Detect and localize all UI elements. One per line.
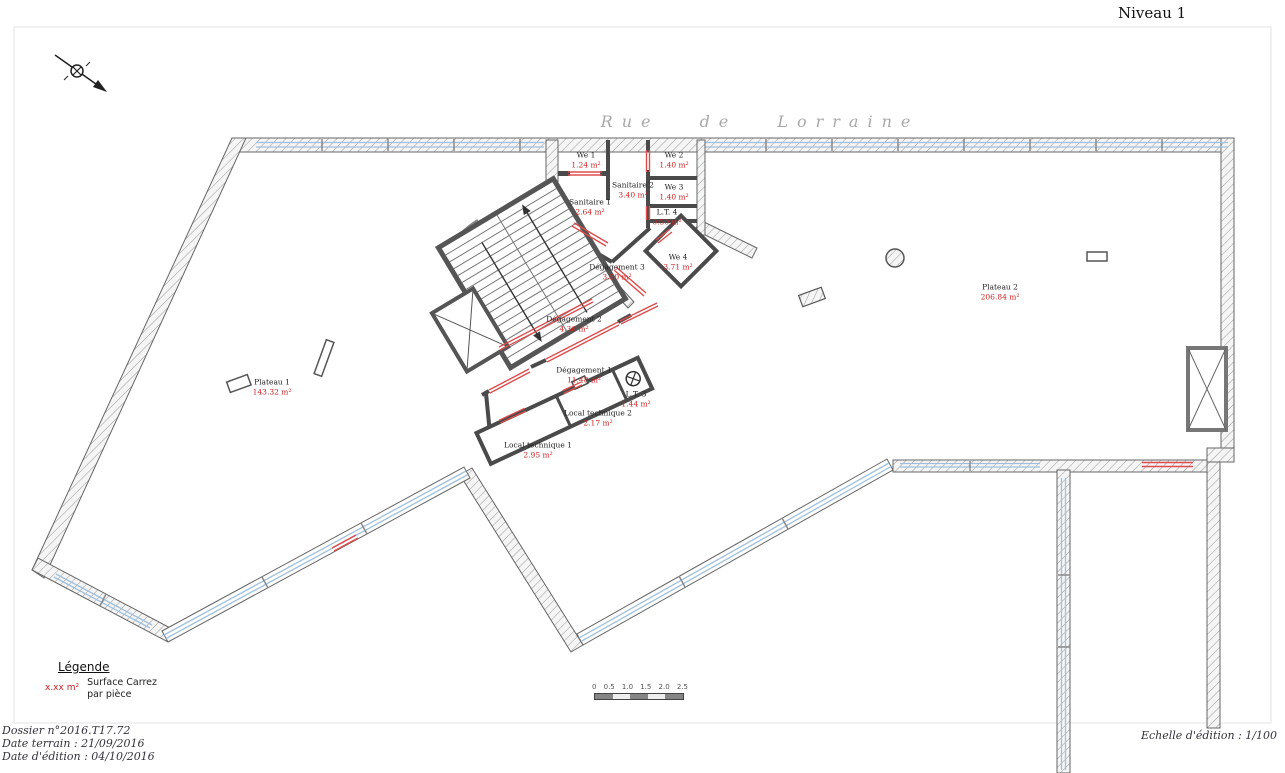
- exterior-walls: [32, 138, 1234, 773]
- room-label-sanitaire2: Sanitaire 23.40 m²: [612, 180, 654, 200]
- scale-bar-ticks: 0 0.5 1.0 1.5 2.0 2.5: [592, 683, 688, 691]
- room-label-degagement2: Dégagement 24.36 m²: [546, 314, 602, 334]
- legend-title: Légende: [58, 660, 157, 674]
- round-column: [886, 249, 904, 267]
- street-label: Rue de Lorraine: [601, 112, 920, 131]
- room-label-sanitaire1: Sanitaire 12.64 m²: [569, 197, 611, 217]
- room-label-we3: We 31.40 m²: [659, 182, 688, 202]
- legend: Légende x.xx m² Surface Carrez par pièce: [45, 660, 157, 701]
- page-title: Niveau 1: [1118, 4, 1186, 22]
- room-label-degagement3: Dégagement 33.50 m²: [589, 262, 645, 282]
- scale-bar-segments: [594, 693, 684, 700]
- room-label-plateau1: Plateau 1143.32 m²: [253, 377, 292, 397]
- footer-info: Dossier n°2016.T17.72 Date terrain : 21/…: [2, 725, 155, 764]
- legend-description: Surface Carrez par pièce: [87, 677, 157, 701]
- edition-scale: Echelle d'édition : 1/100: [1141, 729, 1277, 742]
- north-arrow-icon: [55, 55, 107, 92]
- window-walls: [162, 459, 893, 645]
- legend-sample-area: x.xx m²: [45, 683, 79, 693]
- floor-plan-page: Niveau 1 Rue de Lorraine We 11.24 m² We …: [0, 0, 1285, 773]
- scale-bar: 0 0.5 1.0 1.5 2.0 2.5: [592, 683, 688, 700]
- date-edition: Date d'édition : 04/10/2016: [2, 751, 155, 764]
- room-label-lt3: L.T. 31.44 m²: [621, 389, 650, 409]
- elevator-shaft-east: [1188, 348, 1226, 430]
- room-label-local-technique2: Local technique 22.17 m²: [564, 408, 632, 428]
- date-terrain: Date terrain : 21/09/2016: [2, 738, 155, 751]
- room-label-we1: We 11.24 m²: [571, 150, 600, 170]
- room-label-plateau2: Plateau 2206.84 m²: [981, 282, 1020, 302]
- room-label-degagement1: Dégagement 111.48 m²: [556, 365, 612, 385]
- room-label-we4: We 43.71 m²: [663, 252, 692, 272]
- room-label-lt4: L.T. 40.50 m²: [652, 207, 681, 227]
- room-label-we2: We 21.40 m²: [659, 150, 688, 170]
- room-label-local-technique1: Local technique 12.95 m²: [504, 440, 572, 460]
